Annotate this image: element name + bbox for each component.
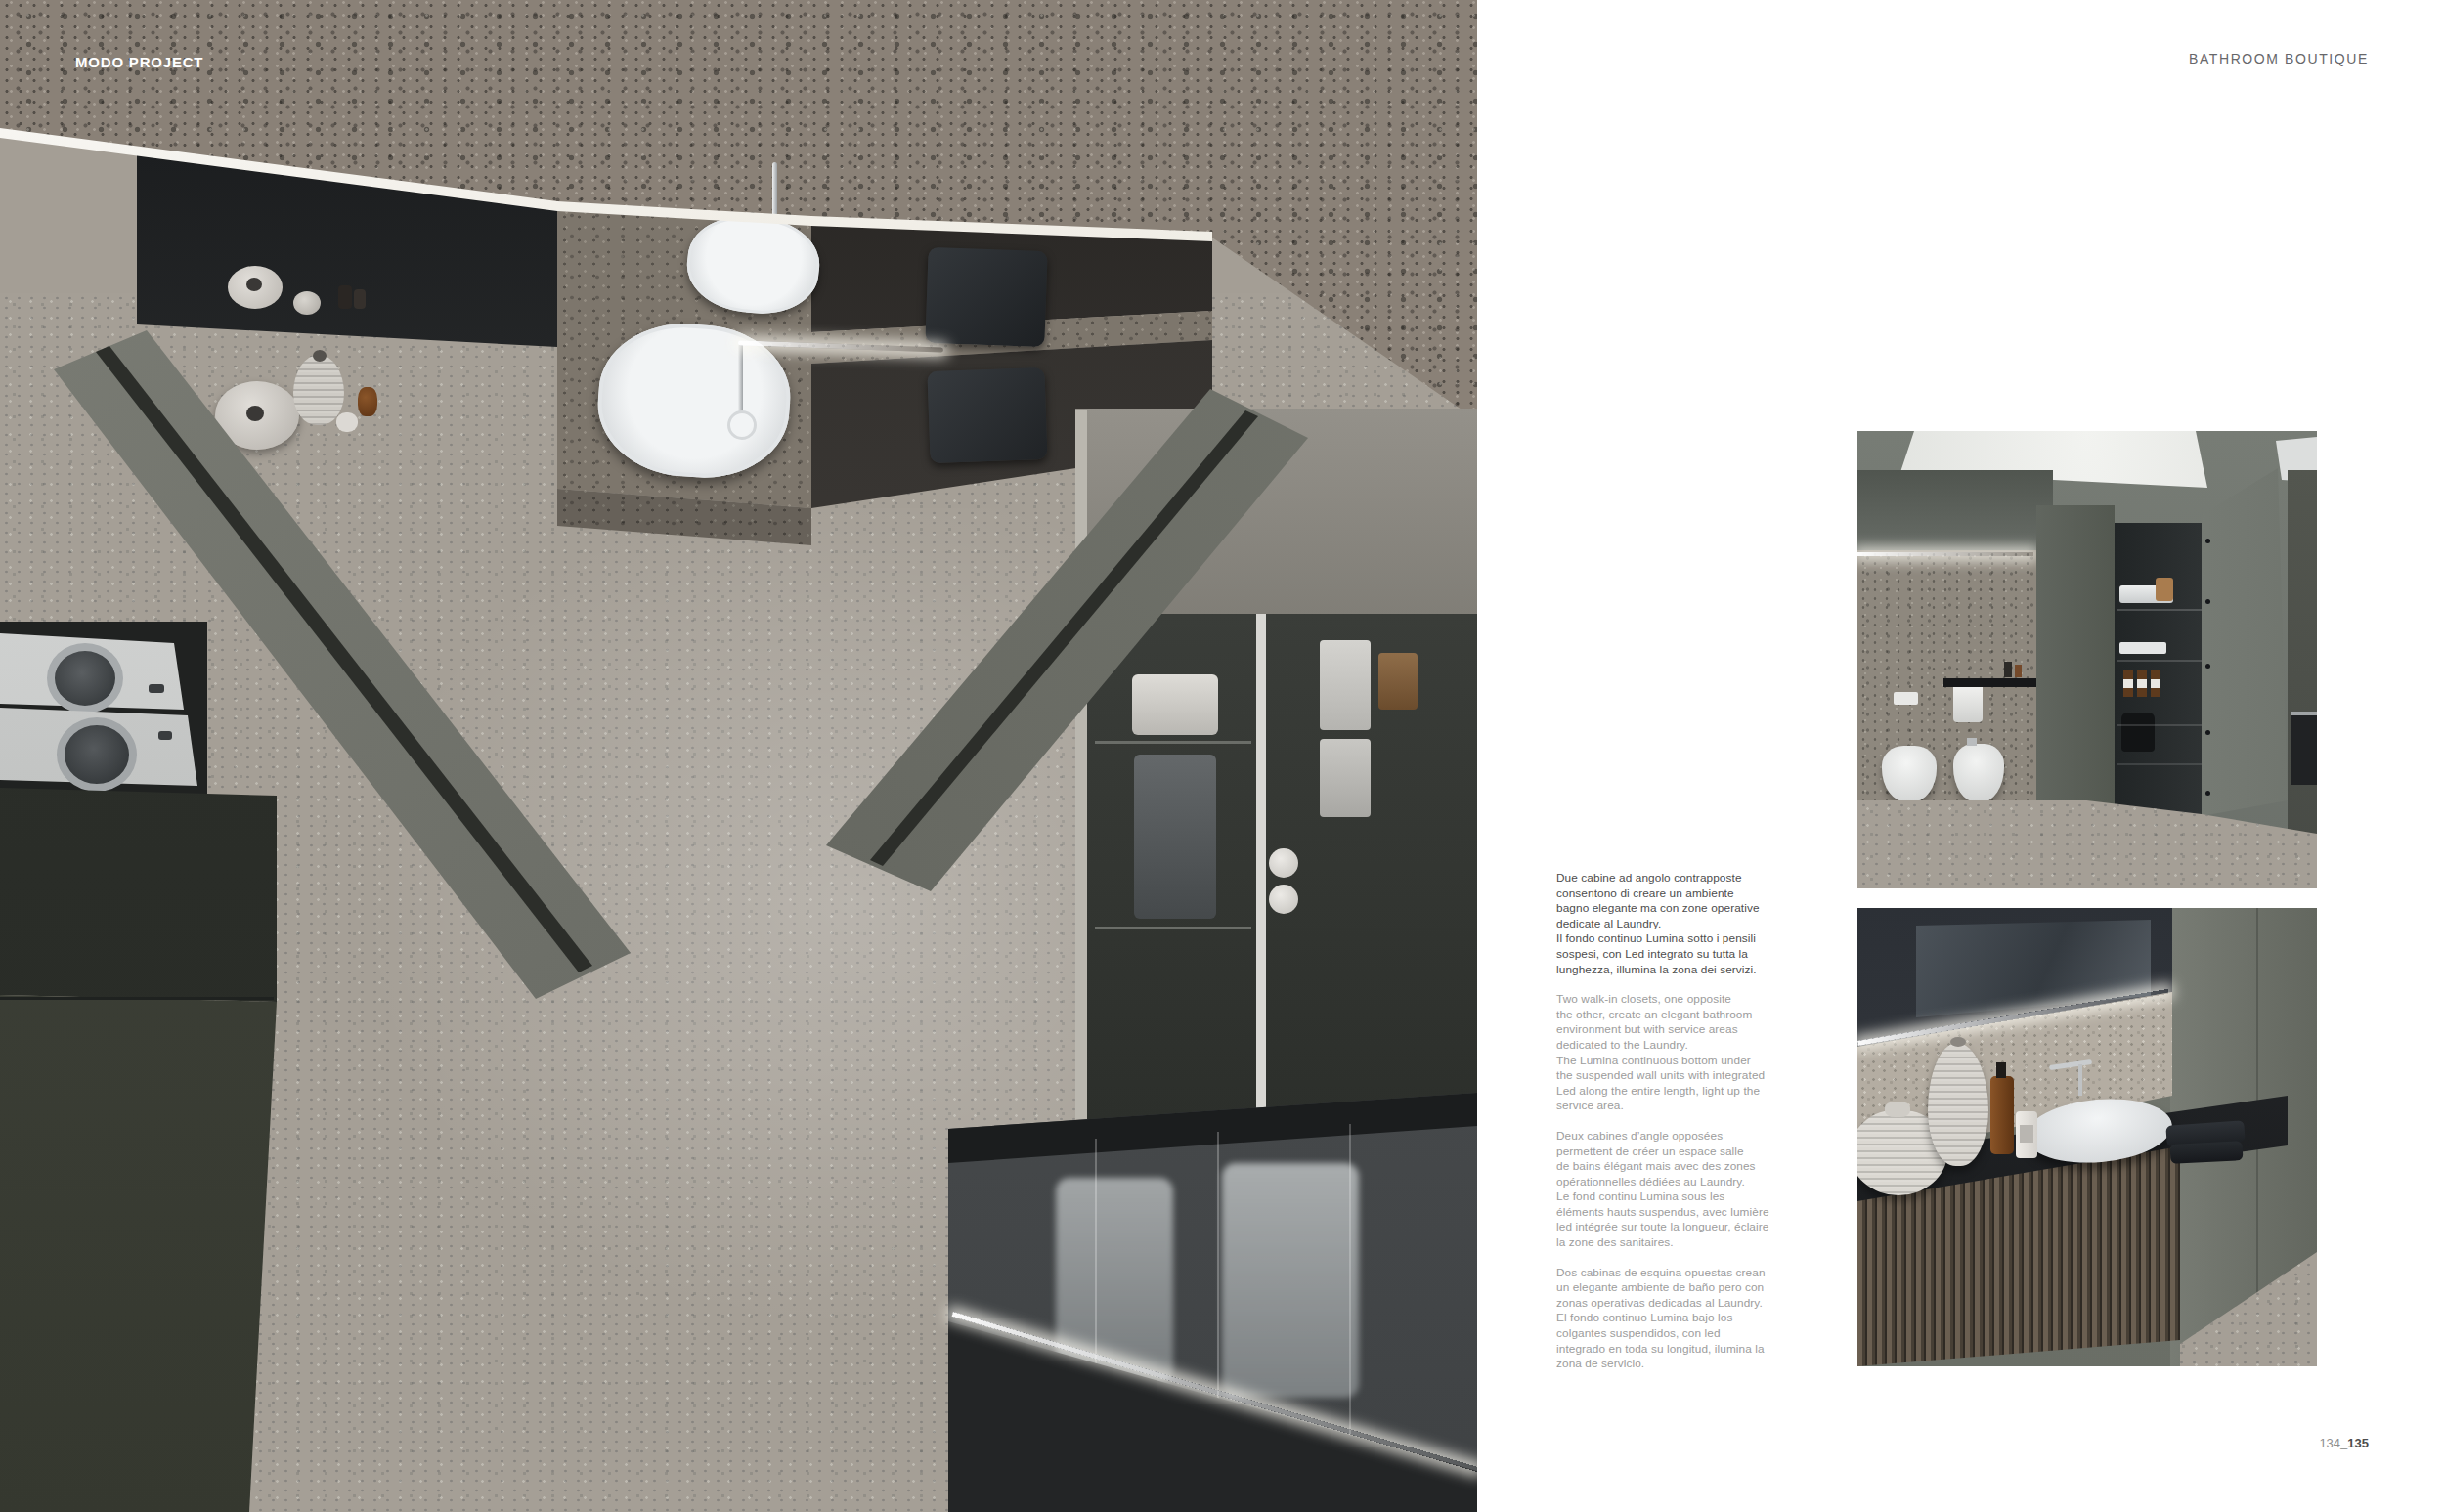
t1-bidet-tap: [1967, 738, 1977, 746]
thumb-photo-vanity: [1857, 908, 2317, 1366]
washing-machine-knob-1: [149, 684, 164, 693]
t1-shelf-bottle-1: [2004, 662, 2012, 677]
closet-shelf-upright: [1256, 614, 1266, 1119]
brand-label: MODO PROJECT: [75, 54, 203, 70]
t2-round-vase-neck: [1885, 1102, 1910, 1117]
t1-column-interior: [2115, 523, 2203, 814]
t1-glass-shelves: [2117, 609, 2202, 611]
t1-upper-wall: [1857, 470, 2053, 550]
catalog-spread: MODO PROJECT BATHROOM BOUTIQUE Due cabin…: [0, 0, 2444, 1512]
description-text-column: Due cabine ad angolo contrapposte consen…: [1556, 871, 1799, 1387]
t1-dark-vanity-top: [2291, 712, 2317, 715]
ribbed-vase-mouth: [313, 350, 327, 362]
collection-label: BATHROOM BOUTIQUE: [2189, 51, 2369, 66]
closet-roll-1: [1269, 848, 1298, 878]
closet-box-2: [1320, 739, 1371, 817]
t1-right-wall: [2288, 470, 2317, 888]
paragraph-spanish: Dos cabinas de esquina opuestas crean un…: [1556, 1266, 1799, 1372]
t1-door-hinges: [2205, 539, 2210, 543]
ribbed-vase: [293, 355, 344, 425]
t1-hand-towel: [1953, 687, 1983, 722]
washing-machine-2-door: [57, 717, 137, 792]
thumb-photo-closet: [1857, 431, 2317, 888]
dark-towel-top: [925, 247, 1047, 347]
t1-black-shelf: [1943, 678, 2038, 687]
t2-folded-towel-2: [2170, 1141, 2244, 1164]
t1-bottle-labels: [2123, 679, 2133, 688]
page-number: 134_135: [2319, 1436, 2369, 1450]
page-number-left: 134: [2319, 1436, 2340, 1450]
main-photo: MODO PROJECT: [0, 0, 1477, 1512]
t2-amber-soap-bottle: [1990, 1076, 2014, 1154]
dark-bottle-1: [338, 285, 352, 309]
t1-interior-jar: [2156, 578, 2173, 601]
left-cabinet-gap-line: [0, 997, 274, 1000]
t1-floor: [1857, 800, 2317, 888]
closet-box-1: [1320, 640, 1371, 730]
t1-led-strip: [1857, 552, 2033, 556]
washing-machine-knob-2: [158, 731, 172, 740]
white-jar: [336, 412, 358, 432]
paragraph-french: Deux cabines d’angle opposées permettent…: [1556, 1129, 1799, 1251]
t1-black-kettle: [2121, 713, 2155, 752]
glass-seam-3: [1349, 1124, 1351, 1476]
t2-wall-faucet-drop: [2078, 1064, 2082, 1096]
closet-shelf-line-2: [1095, 927, 1251, 929]
glass-cabinet-towel-2: [1222, 1163, 1359, 1398]
disc-vase-small-mouth: [246, 278, 262, 291]
disc-vase-large-mouth: [246, 406, 264, 421]
t1-interior-towel-2: [2119, 642, 2166, 654]
t2-white-bottle-label: [2020, 1125, 2033, 1143]
closet-column-edge: [1075, 410, 1087, 1119]
t2-tall-vase-mouth: [1950, 1037, 1966, 1047]
paragraph-english: Two walk-in closets, one opposite the ot…: [1556, 992, 1799, 1114]
faucet-bottom-rod: [738, 344, 743, 412]
washing-machine-1-door: [47, 643, 123, 713]
paragraph-italian: Due cabine ad angolo contrapposte consen…: [1556, 871, 1799, 977]
dark-bottle-2: [354, 289, 366, 309]
closet-wood-box: [1378, 653, 1418, 710]
t1-flush-plate: [1894, 692, 1918, 705]
closet-towel-stack-light: [1132, 674, 1218, 735]
faucet-bottom-ring: [727, 410, 757, 440]
page-number-right: _135: [2340, 1436, 2369, 1450]
faucet-top-rod: [772, 162, 777, 223]
closet-shelf-line-1: [1095, 741, 1251, 744]
amber-bottle: [358, 387, 377, 416]
closet-towel-stack-dark: [1134, 755, 1216, 919]
t1-column-closed-panel: [2036, 505, 2115, 818]
t2-soap-pump: [1996, 1062, 2006, 1078]
small-vase: [293, 291, 321, 315]
closet-roll-2: [1269, 885, 1298, 914]
t1-shelf-bottle-2: [2015, 665, 2022, 677]
dark-towel-bottom: [927, 367, 1047, 463]
t1-dark-vanity: [2291, 712, 2317, 785]
